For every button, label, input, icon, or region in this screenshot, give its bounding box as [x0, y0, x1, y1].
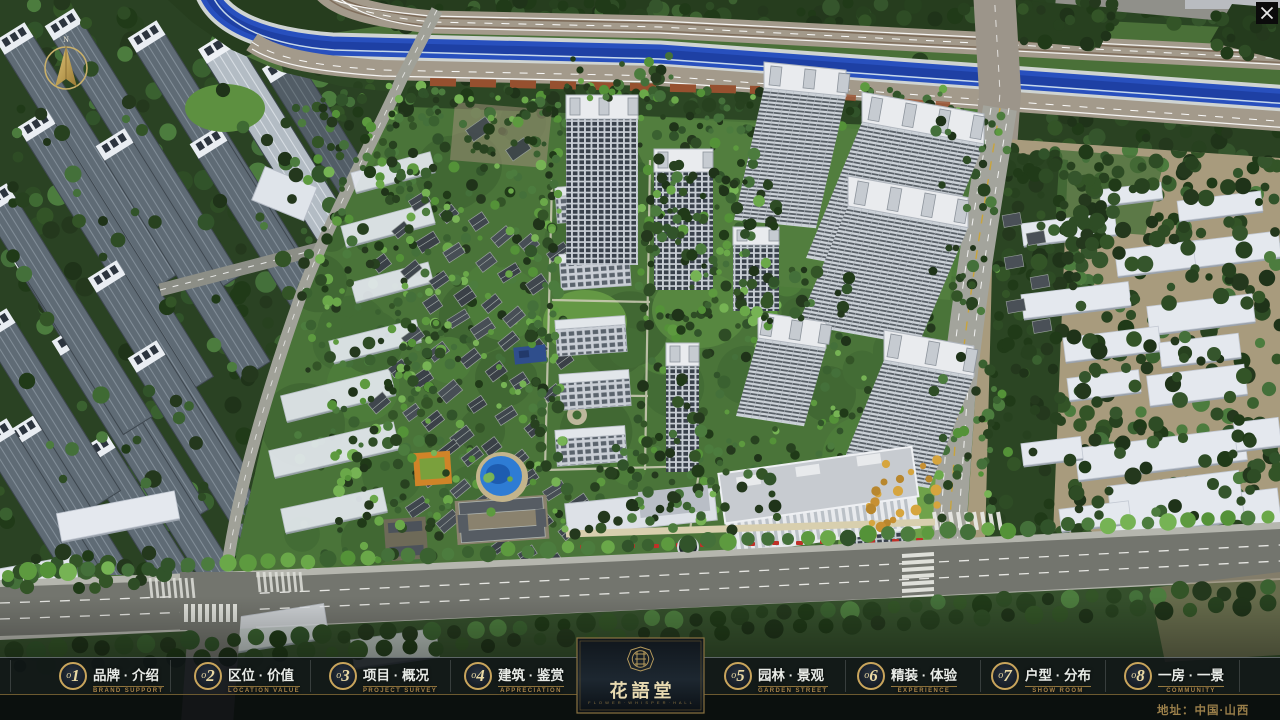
svg-text:N: N	[63, 35, 69, 44]
